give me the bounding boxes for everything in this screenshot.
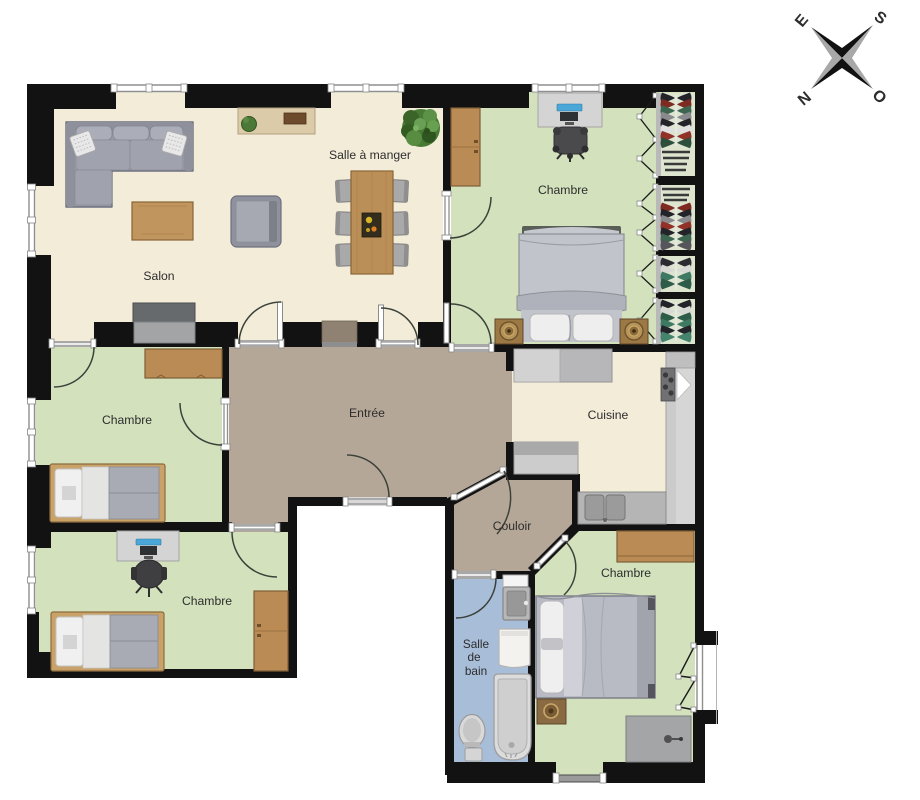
svg-text:O: O	[869, 87, 890, 108]
svg-text:Salle: Salle	[463, 637, 490, 651]
svg-text:Entrée: Entrée	[349, 406, 385, 420]
svg-text:de: de	[467, 650, 481, 664]
svg-text:Chambre: Chambre	[601, 566, 651, 580]
svg-text:Salle à manger: Salle à manger	[329, 148, 411, 162]
svg-text:Couloir: Couloir	[493, 519, 532, 533]
svg-text:Chambre: Chambre	[102, 413, 152, 427]
svg-text:E: E	[792, 11, 812, 30]
svg-text:N: N	[795, 89, 815, 109]
svg-text:S: S	[871, 8, 890, 28]
svg-text:Chambre: Chambre	[538, 183, 588, 197]
svg-text:bain: bain	[465, 664, 487, 678]
svg-text:Chambre: Chambre	[182, 594, 232, 608]
svg-text:Salon: Salon	[143, 269, 174, 283]
svg-text:Cuisine: Cuisine	[588, 408, 629, 422]
